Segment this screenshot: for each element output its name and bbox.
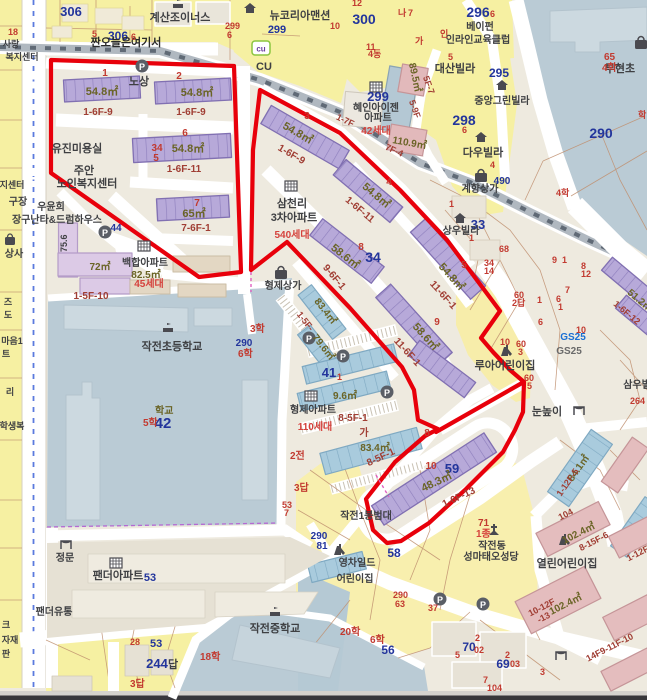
svg-text:P: P [139,62,145,72]
svg-text:290: 290 [236,338,253,349]
svg-text:5: 5 [527,381,532,391]
svg-text:75.6: 75.6 [59,234,69,252]
svg-text:작전초등학교: 작전초등학교 [142,339,203,353]
svg-text:7: 7 [194,198,200,209]
svg-text:작전1봉범대: 작전1봉범대 [340,509,392,522]
svg-text:유진미용실: 유진미용실 [52,141,103,155]
svg-text:306: 306 [60,4,82,19]
svg-text:가: 가 [415,35,424,46]
svg-text:GS25: GS25 [556,346,582,357]
svg-text:2답: 2답 [512,297,526,308]
svg-text:1: 1 [337,372,342,382]
svg-text:299: 299 [268,24,286,36]
svg-text:34: 34 [365,249,381,265]
svg-text:28: 28 [130,637,140,647]
svg-text:03: 03 [510,659,520,669]
svg-text:3학: 3학 [250,322,266,335]
svg-text:3: 3 [304,111,310,122]
svg-text:1: 1 [449,199,454,209]
svg-text:18학: 18학 [200,650,221,663]
svg-text:장구난타&드럼하우스: 장구난타&드럼하우스 [12,213,102,226]
svg-text:가: 가 [359,426,369,439]
svg-text:작전동: 작전동 [478,539,506,552]
svg-text:296: 296 [466,4,490,20]
svg-text:3답: 3답 [130,678,146,690]
svg-text:루아어린이집: 루아어린이집 [475,358,536,372]
svg-text:형제아파트: 형제아파트 [290,403,336,416]
svg-text:6: 6 [227,30,232,40]
svg-text:54.8㎡: 54.8㎡ [172,141,204,155]
svg-text:299: 299 [367,89,389,104]
svg-text:81: 81 [316,541,328,552]
svg-text:리: 리 [6,386,14,397]
svg-text:학교: 학교 [155,404,173,417]
svg-text:4: 4 [490,160,495,170]
svg-text:대산빌라: 대산빌라 [435,61,476,75]
svg-text:5: 5 [461,260,467,271]
svg-text:37: 37 [428,603,438,613]
svg-text:계산조이너스: 계산조이너스 [150,10,211,24]
svg-text:도: 도 [4,310,13,320]
svg-text:상우빌라: 상우빌라 [443,224,481,237]
svg-text:계향상가: 계향상가 [462,182,500,195]
svg-text:9: 9 [434,317,440,328]
svg-text:성마태오성당: 성마태오성당 [463,550,519,563]
svg-text:상사: 상사 [5,247,24,260]
svg-text:41: 41 [322,365,336,380]
svg-text:7: 7 [565,285,570,295]
svg-text:7-6F-1: 7-6F-1 [181,223,211,234]
svg-text:10: 10 [500,337,510,347]
svg-text:6: 6 [490,9,495,19]
svg-text:노인복지센터: 노인복지센터 [57,176,118,190]
svg-text:트: 트 [2,349,11,359]
svg-text:14: 14 [484,266,494,276]
svg-text:팬더아파트: 팬더아파트 [93,568,144,582]
svg-text:4: 4 [386,177,392,188]
svg-text:열린어린이집: 열린어린이집 [537,556,598,570]
svg-text:1: 1 [469,233,474,243]
svg-text:10: 10 [330,21,340,31]
svg-text:자재: 자재 [2,634,19,645]
svg-text:42세대: 42세대 [361,124,391,137]
svg-text:우윤희: 우윤희 [37,200,65,213]
svg-text:5: 5 [455,650,460,660]
svg-text:작전중학교: 작전중학교 [250,621,301,635]
svg-text:2: 2 [475,633,480,643]
svg-text:53: 53 [150,638,162,650]
svg-text:45세대: 45세대 [134,277,164,290]
svg-text:300: 300 [352,11,376,27]
svg-text:학생복: 학생복 [0,420,24,431]
svg-text:1: 1 [537,295,542,305]
svg-text:아파트: 아파트 [364,111,392,124]
svg-text:540세대: 540세대 [274,228,309,241]
svg-text:18: 18 [8,27,18,37]
svg-text:12: 12 [581,269,591,279]
svg-text:5학: 5학 [143,416,159,429]
svg-text:중앙그린빌라: 중앙그린빌라 [474,94,530,107]
svg-text:71: 71 [478,518,490,529]
svg-text:어린이집: 어린이집 [337,572,374,585]
svg-text:사랑: 사랑 [3,38,20,49]
svg-text:244: 244 [146,656,168,671]
svg-text:팬더유통: 팬더유통 [36,605,73,618]
svg-text:베이펀: 베이펀 [466,20,494,33]
svg-text:104: 104 [487,683,502,693]
svg-text:1-6F-9: 1-6F-9 [83,107,113,118]
svg-text:83.4㎡: 83.4㎡ [360,441,389,454]
svg-text:복지센터: 복지센터 [5,51,38,62]
svg-text:54.8㎡: 54.8㎡ [181,85,213,99]
svg-text:65: 65 [604,52,616,63]
svg-text:눈높이: 눈높이 [532,404,562,418]
svg-text:2: 2 [176,71,182,82]
svg-text:4학: 4학 [602,61,618,74]
svg-text:63: 63 [395,599,405,609]
svg-text:1: 1 [558,302,563,312]
svg-text:나: 나 [398,7,407,18]
svg-text:44: 44 [110,223,122,234]
svg-text:5: 5 [448,52,453,62]
svg-text:290: 290 [589,125,613,141]
svg-text:8: 8 [358,242,364,253]
svg-text:6: 6 [182,128,188,139]
svg-text:1-6F-11: 1-6F-11 [167,164,202,175]
svg-text:12: 12 [352,0,362,8]
svg-text:110세대: 110세대 [298,420,333,433]
svg-text:02: 02 [474,645,484,655]
svg-text:즈: 즈 [4,297,13,307]
svg-text:10: 10 [425,461,437,472]
svg-text:정문: 정문 [56,551,74,564]
svg-text:1-5F-10: 1-5F-10 [73,291,108,302]
svg-text:7: 7 [284,508,289,518]
svg-text:8: 8 [424,428,430,439]
svg-text:8-5F-1: 8-5F-1 [338,413,368,424]
svg-text:영차일드: 영차일드 [339,556,376,569]
svg-text:다우빌라: 다우빌라 [463,145,504,159]
svg-text:인라인교육클럽: 인라인교육클럽 [446,33,510,46]
svg-text:3차아파트: 3차아파트 [271,210,318,224]
svg-text:5: 5 [92,29,97,39]
svg-text:9: 9 [552,255,557,265]
svg-text:295: 295 [489,66,509,80]
svg-text:1: 1 [102,68,108,79]
svg-text:짠오늘은여기서: 짠오늘은여기서 [91,35,162,49]
svg-text:삼천리: 삼천리 [277,196,307,210]
svg-text:5: 5 [153,153,159,164]
svg-text:P: P [340,352,346,362]
svg-text:7: 7 [408,8,413,18]
svg-text:CU: CU [256,61,272,73]
svg-text:4동: 4동 [368,49,381,59]
svg-text:판: 판 [2,648,11,659]
svg-text:주안: 주안 [74,163,94,177]
svg-text:53: 53 [144,572,156,584]
svg-text:3답: 3답 [294,482,310,494]
svg-text:답: 답 [168,657,178,671]
svg-text:20학: 20학 [340,625,361,638]
svg-text:6학: 6학 [370,633,386,646]
svg-text:노상: 노상 [129,74,149,88]
svg-text:1-6F-9: 1-6F-9 [176,107,206,118]
svg-text:인: 인 [440,29,448,39]
svg-text:지센터: 지센터 [0,179,24,190]
svg-text:마음1: 마음1 [1,335,23,346]
svg-text:6학: 6학 [238,347,254,360]
svg-text:9.6㎡: 9.6㎡ [333,389,357,402]
svg-text:6: 6 [131,32,136,42]
svg-text:6: 6 [462,125,467,135]
svg-text:4학: 4학 [556,187,570,198]
svg-text:형제상가: 형제상가 [265,279,303,292]
svg-text:58: 58 [387,546,401,560]
svg-text:백합아파트: 백합아파트 [122,256,168,269]
svg-text:54.8㎡: 54.8㎡ [86,84,118,98]
svg-text:cu: cu [256,45,265,54]
svg-text:3: 3 [518,347,523,357]
svg-text:GS25: GS25 [560,332,586,343]
svg-text:264: 264 [630,396,645,406]
svg-text:1종: 1종 [476,528,491,540]
svg-text:학: 학 [638,109,647,120]
svg-text:72㎡: 72㎡ [89,260,110,273]
svg-text:2전: 2전 [290,449,305,462]
svg-text:68: 68 [499,244,509,254]
svg-text:구장: 구장 [9,195,28,208]
svg-text:1: 1 [562,255,567,265]
svg-text:P: P [480,600,486,610]
svg-text:뉴코리아맨션: 뉴코리아맨션 [270,8,331,22]
svg-text:3: 3 [540,667,545,677]
svg-text:P: P [102,228,108,238]
svg-text:삼우빌: 삼우빌 [623,378,647,391]
svg-text:6: 6 [538,317,543,327]
svg-text:크: 크 [2,620,10,630]
svg-text:P: P [384,388,390,398]
